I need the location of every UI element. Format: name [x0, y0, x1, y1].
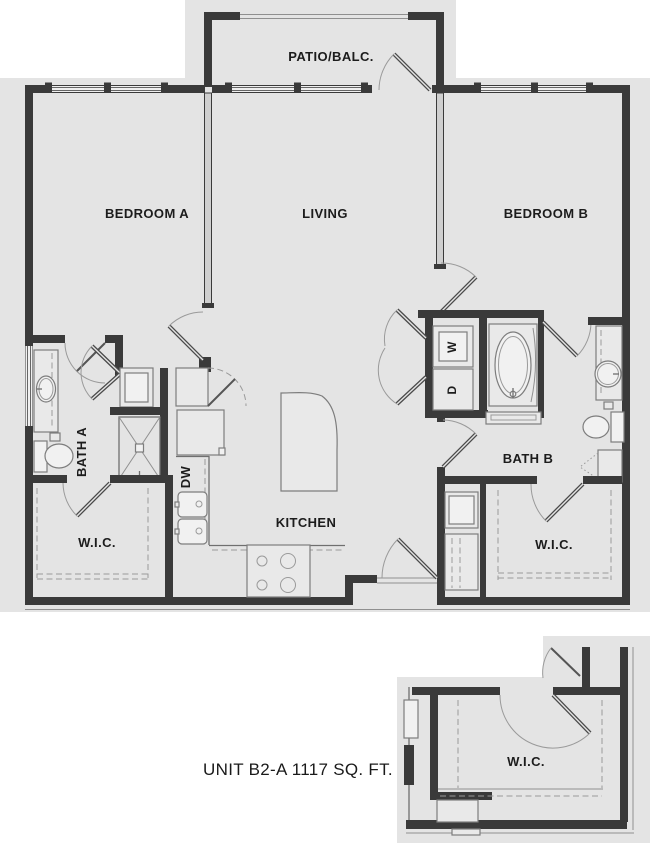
kitchen-sink-bowl: [178, 519, 207, 544]
window-mullion: [361, 83, 368, 94]
bath-b-label: BATH B: [503, 451, 554, 466]
shower-drain: [136, 444, 144, 452]
bath-a-toilet-bowl: [45, 444, 73, 468]
wall-wic-a-kitchen: [165, 483, 173, 597]
window-mullion: [586, 83, 593, 94]
unit-caption: UNIT B2-A 1117 SQ. FT.: [203, 760, 393, 779]
living-label: LIVING: [302, 206, 348, 221]
wall-bath-a-kitchen: [160, 368, 168, 480]
hall-closet-lower: [445, 534, 478, 590]
window-mullion: [531, 83, 538, 94]
patio-wall-top-left: [204, 12, 240, 20]
patio-wall-top-right: [408, 12, 444, 20]
pantry: [176, 368, 208, 406]
window-mullion: [161, 83, 168, 94]
inset-left-opening: [404, 700, 418, 738]
kitchen-sink-bowl: [178, 492, 207, 517]
refrigerator-handle: [219, 448, 225, 455]
dishwasher-label: DW: [178, 465, 193, 488]
wic-a-label: W.I.C.: [78, 535, 116, 550]
range: [247, 545, 310, 597]
bath-b-toilet-tank: [611, 412, 624, 442]
dryer-label: D: [445, 385, 459, 394]
wic-b-label: W.I.C.: [535, 537, 573, 552]
kitchen-island: [281, 393, 337, 491]
tub-deck: [486, 412, 541, 424]
wall-living-bedroom-b: [437, 93, 444, 266]
window-bath-a: [26, 345, 33, 427]
wall-laundry-top: [418, 310, 544, 318]
bedroom-a-label: BEDROOM A: [105, 206, 189, 221]
kitchen-faucet: [175, 502, 179, 507]
window-mullion: [294, 83, 301, 94]
window-mullion: [104, 83, 111, 94]
washer-label: W: [445, 341, 459, 353]
wall-right: [622, 85, 630, 605]
refrigerator: [177, 410, 224, 455]
bath-a-label: BATH A: [74, 427, 89, 477]
patio-background: [185, 0, 456, 78]
wall-step-riser-left: [345, 575, 353, 605]
floor-plan-drawing: PATIO/BALC. BEDROOM A LIVING BEDROOM B: [0, 0, 650, 844]
window-mullion: [225, 83, 232, 94]
window-mullion: [45, 83, 52, 94]
patio-wall-right: [436, 12, 444, 87]
wic-inset-label: W.I.C.: [507, 754, 545, 769]
wall-bottom-left: [25, 597, 353, 605]
main-floor-background: [0, 78, 650, 612]
wall-bottom-right: [445, 597, 630, 605]
bedroom-b-label: BEDROOM B: [504, 206, 589, 221]
wall-hall-closets: [437, 467, 445, 597]
patio-label: PATIO/BALC.: [288, 49, 374, 64]
inset-cabinet: [437, 800, 478, 822]
floor-plan-page: PATIO/BALC. BEDROOM A LIVING BEDROOM B: [0, 0, 650, 844]
wall-step-top-left: [353, 575, 377, 583]
window-mullion: [474, 83, 481, 94]
wall-bedroom-a-living: [205, 93, 212, 305]
patio-wall-left: [204, 12, 212, 87]
wall-wic-b-left: [480, 484, 486, 597]
bath-b-toilet-bowl: [583, 416, 609, 438]
kitchen-label: KITCHEN: [276, 515, 337, 530]
